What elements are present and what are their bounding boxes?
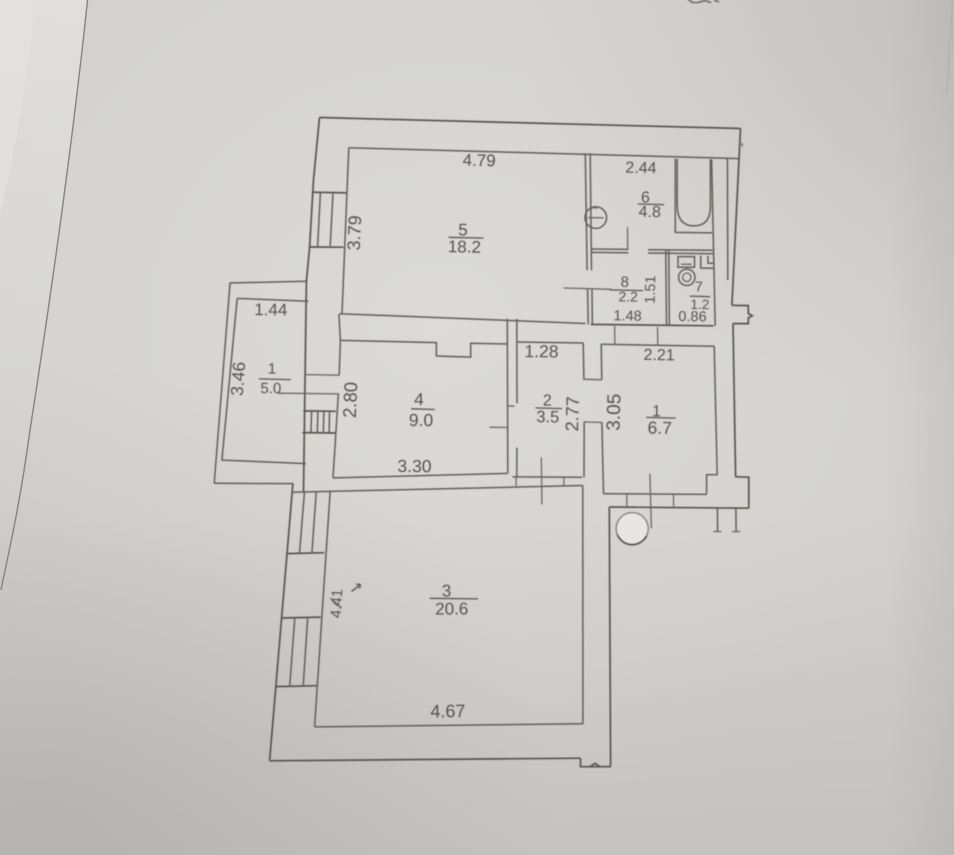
svg-text:2.21: 2.21 bbox=[644, 347, 675, 364]
svg-text:2.77: 2.77 bbox=[562, 396, 583, 432]
svg-text:1: 1 bbox=[268, 360, 276, 377]
svg-text:4: 4 bbox=[414, 389, 424, 409]
svg-text:4.41: 4.41 bbox=[328, 588, 347, 618]
svg-text:2.44: 2.44 bbox=[625, 160, 657, 178]
svg-text:2.80: 2.80 bbox=[339, 381, 362, 418]
svg-text:4.67: 4.67 bbox=[430, 701, 465, 721]
svg-text:2: 2 bbox=[543, 393, 552, 410]
svg-text:5.0: 5.0 bbox=[260, 380, 281, 397]
svg-text:1.48: 1.48 bbox=[613, 308, 642, 324]
svg-text:3: 3 bbox=[442, 581, 452, 600]
svg-text:4.8: 4.8 bbox=[638, 204, 661, 222]
svg-text:20.6: 20.6 bbox=[435, 599, 468, 618]
svg-text:3.79: 3.79 bbox=[344, 215, 366, 251]
svg-text:3.5: 3.5 bbox=[536, 408, 559, 426]
svg-text:3.05: 3.05 bbox=[604, 393, 626, 431]
svg-text:3.30: 3.30 bbox=[397, 456, 432, 476]
svg-text:2.2: 2.2 bbox=[618, 288, 638, 304]
svg-text:4.79: 4.79 bbox=[462, 151, 496, 171]
svg-text:6.7: 6.7 bbox=[648, 418, 673, 438]
svg-text:1.44: 1.44 bbox=[254, 300, 287, 319]
svg-text:3.46: 3.46 bbox=[227, 361, 249, 396]
svg-text:7: 7 bbox=[695, 278, 703, 294]
svg-text:0.86: 0.86 bbox=[678, 309, 707, 325]
svg-text:1.28: 1.28 bbox=[524, 341, 558, 361]
svg-text:1.51: 1.51 bbox=[643, 275, 660, 304]
svg-text:9.0: 9.0 bbox=[409, 410, 434, 430]
svg-text:18.2: 18.2 bbox=[448, 237, 482, 257]
